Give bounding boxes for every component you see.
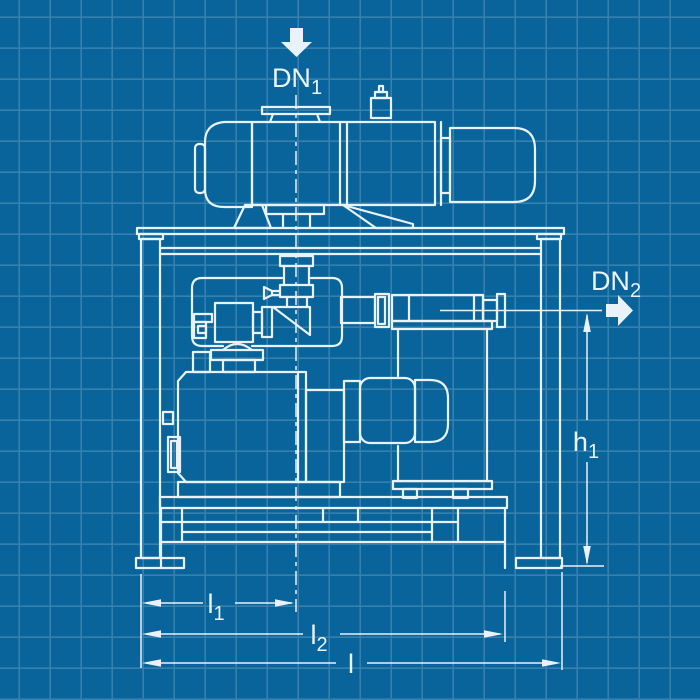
technical-drawing-canvas: DN1 DN2 h1 l1 l2 l (0, 0, 700, 700)
h1-subscript: 1 (588, 441, 599, 463)
dn2-text: DN (591, 266, 630, 296)
l2-subscript: 2 (316, 634, 327, 656)
dn2-subscript: 2 (630, 280, 641, 302)
h1-text: h (573, 427, 588, 457)
l-text: l (348, 649, 354, 679)
dn1-subscript: 1 (311, 77, 322, 99)
l1-subscript: 1 (213, 603, 224, 625)
grid-overlay (0, 0, 700, 700)
dim-label-l: l (348, 649, 354, 679)
dn1-text: DN (272, 63, 311, 93)
blueprint-page: DN1 DN2 h1 l1 l2 l (0, 0, 700, 700)
